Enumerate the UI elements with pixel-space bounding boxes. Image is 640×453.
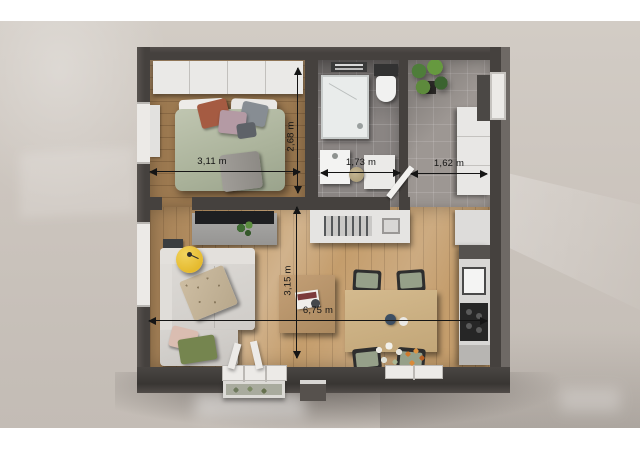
tv-sideboard (192, 213, 277, 245)
wall-bathroom-hall (399, 60, 408, 210)
burner (466, 309, 472, 315)
wardrobe-door-gap (227, 61, 228, 94)
towel-bar (335, 68, 363, 70)
toilet-cistern (374, 64, 398, 76)
oven (462, 267, 486, 295)
laundry-basket (349, 167, 364, 182)
sofa-backrest (160, 248, 255, 264)
orange-flowers (401, 346, 429, 372)
table-plate (399, 317, 408, 326)
wall-west (137, 47, 150, 393)
entry-plant (407, 57, 451, 99)
arrowhead-up (294, 67, 302, 75)
cabinet-gap (457, 136, 490, 137)
wall-bedroom-bathroom (305, 60, 318, 210)
floor-plan-render: 3,11 m 2,68 m 1,73 m 1,62 m 3,15 m (0, 0, 640, 453)
counter-dark-section (459, 245, 490, 259)
pillow-dark (236, 122, 257, 139)
window-mullion (265, 366, 267, 382)
chair-seat (356, 272, 379, 288)
arrowhead-left (410, 170, 418, 178)
arrowhead-down (294, 186, 302, 194)
dimension-label: 3,15 m (283, 255, 294, 307)
arrowhead-left (149, 168, 157, 176)
arrowhead-down (293, 351, 301, 359)
kitchen-counter-east (459, 245, 490, 365)
wall-stub (399, 197, 410, 210)
wardrobe-door-gap (265, 61, 266, 94)
window-planter-box (223, 381, 285, 398)
sink-basin (382, 218, 400, 234)
radiator (150, 105, 160, 157)
counter-base (459, 345, 490, 365)
towel-bar (335, 64, 363, 66)
dimension-label: 6,75 m (292, 305, 344, 316)
entrance-door (490, 72, 506, 120)
wardrobe-door-gap (189, 61, 190, 94)
sideboard-plant (234, 219, 256, 239)
towel-radiator (331, 62, 367, 72)
arrowhead-right (480, 317, 488, 325)
shower-glass-edge (329, 83, 357, 100)
planter-greenery (228, 385, 278, 395)
arrowhead-left (148, 317, 156, 325)
backdrop-reflection (20, 147, 135, 218)
shower (321, 75, 369, 139)
apartment (137, 47, 510, 393)
wardrobe (153, 61, 303, 94)
dimension-label: 1,62 m (423, 158, 475, 169)
toilet (376, 76, 396, 102)
dish-rack (324, 216, 372, 236)
wall-stub-left (150, 197, 162, 210)
dimension-label: 1,73 m (335, 157, 387, 168)
wall-north (137, 47, 510, 60)
doormat (477, 75, 490, 121)
exterior-box (300, 380, 326, 401)
burner (466, 323, 472, 329)
arrowhead-right (393, 169, 401, 177)
arrowhead-up (293, 206, 301, 214)
kitchen-counter-north (310, 210, 410, 243)
bedroom-window (137, 102, 150, 164)
arrowhead-left (320, 169, 328, 177)
window-mullion (243, 366, 245, 382)
kitchen-tall-unit (455, 210, 490, 245)
burner (476, 327, 482, 333)
bed (175, 97, 285, 191)
chair-seat (399, 272, 422, 288)
wall-bedroom-living (192, 197, 390, 210)
living-window-west (137, 222, 150, 307)
dimension-label: 2,68 m (286, 111, 297, 163)
arrowhead-right (480, 170, 488, 178)
pendant-lamp (176, 246, 203, 273)
floor-reflection (560, 388, 620, 412)
shower-drain (357, 123, 363, 129)
dimension-label: 3,11 m (186, 156, 238, 167)
